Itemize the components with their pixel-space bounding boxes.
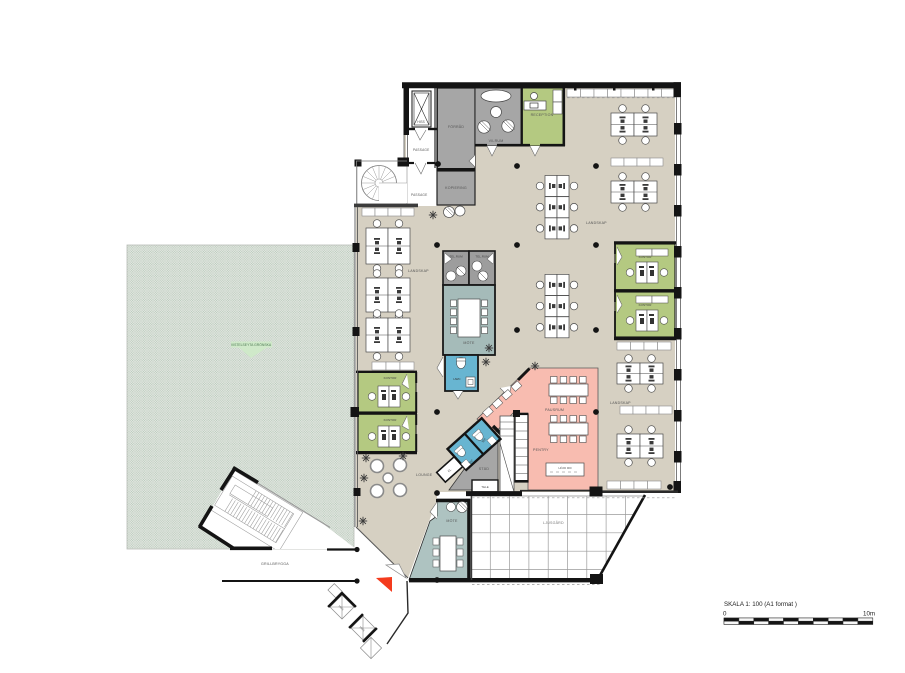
svg-text:TEL.RUM: TEL.RUM: [475, 255, 489, 259]
svg-text:PASSAGE: PASSAGE: [413, 148, 429, 152]
svg-text:HWC: HWC: [453, 377, 461, 381]
svg-text:SKALA 1: 100 (A1 format ): SKALA 1: 100 (A1 format ): [724, 601, 797, 608]
svg-text:LANDSKAP: LANDSKAP: [610, 401, 631, 405]
svg-text:TEL.RUM: TEL.RUM: [449, 255, 463, 259]
svg-text:STÄD: STÄD: [479, 467, 490, 471]
svg-text:LJUSGÅRD: LJUSGÅRD: [543, 520, 564, 525]
svg-text:LANDSKAP: LANDSKAP: [586, 221, 607, 225]
svg-text:MÖTE: MÖTE: [463, 341, 475, 345]
svg-text:MÖTE: MÖTE: [446, 519, 458, 523]
svg-text:LANDSKAP: LANDSKAP: [408, 269, 429, 273]
svg-text:VILRUM: VILRUM: [489, 139, 504, 143]
svg-text:KONTOR: KONTOR: [384, 376, 398, 380]
svg-text:HÖJD 900: HÖJD 900: [558, 466, 572, 470]
svg-text:TELE: TELE: [481, 485, 489, 489]
svg-text:KONTOR: KONTOR: [384, 418, 398, 422]
svg-text:KOPIERING: KOPIERING: [445, 186, 467, 190]
svg-text:10m: 10m: [863, 611, 875, 618]
svg-text:LOUNGE: LOUNGE: [416, 473, 433, 477]
svg-text:FÖRRÅD: FÖRRÅD: [448, 124, 465, 129]
svg-text:GRILLBRYGGA: GRILLBRYGGA: [261, 562, 289, 566]
svg-text:HISS: HISS: [417, 120, 424, 124]
svg-text:RECEPTION: RECEPTION: [531, 113, 554, 117]
svg-text:KONTOR: KONTOR: [639, 303, 653, 307]
svg-text:0: 0: [723, 611, 727, 618]
svg-text:PASSAGE: PASSAGE: [411, 193, 427, 197]
svg-text:VISTELSEYTA GRÖNSKA: VISTELSEYTA GRÖNSKA: [231, 343, 272, 347]
svg-text:PENTRY: PENTRY: [533, 448, 549, 452]
svg-text:PAUSRUM: PAUSRUM: [545, 408, 564, 412]
